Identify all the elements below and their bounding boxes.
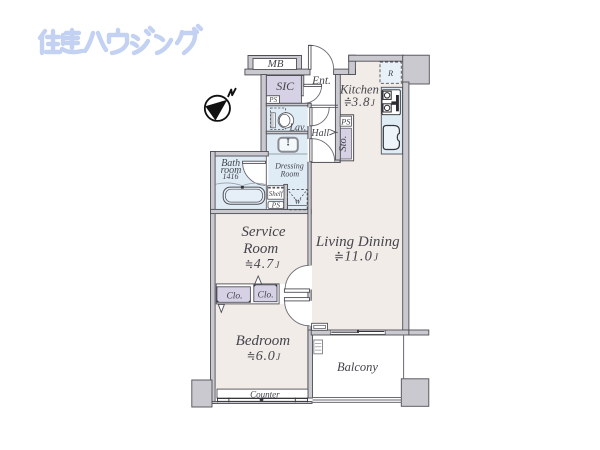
svg-text:PS: PS — [340, 116, 351, 126]
svg-text:MB: MB — [267, 58, 284, 70]
svg-text:Shelf: Shelf — [269, 190, 284, 198]
svg-text:Ent.: Ent. — [311, 75, 331, 87]
svg-text:SIC: SIC — [276, 79, 295, 93]
svg-text:R: R — [387, 68, 394, 78]
svg-text:PS: PS — [268, 96, 277, 104]
svg-text:Clo.: Clo. — [226, 291, 242, 301]
svg-text:Hall: Hall — [310, 128, 329, 139]
svg-text:Room: Room — [242, 241, 278, 257]
svg-text:1416: 1416 — [223, 172, 239, 181]
svg-text:W: W — [294, 197, 301, 206]
svg-text:PS: PS — [271, 200, 281, 209]
svg-text:Balcony: Balcony — [337, 360, 378, 374]
svg-text:Lav.: Lav. — [289, 122, 307, 133]
svg-text:Room: Room — [279, 169, 299, 178]
svg-text:Service: Service — [241, 224, 285, 240]
svg-text:Sto.: Sto. — [338, 136, 349, 152]
svg-text:Living Dining: Living Dining — [315, 234, 400, 250]
svg-text:Bedroom: Bedroom — [236, 333, 291, 349]
svg-text:Clo.: Clo. — [258, 290, 274, 300]
